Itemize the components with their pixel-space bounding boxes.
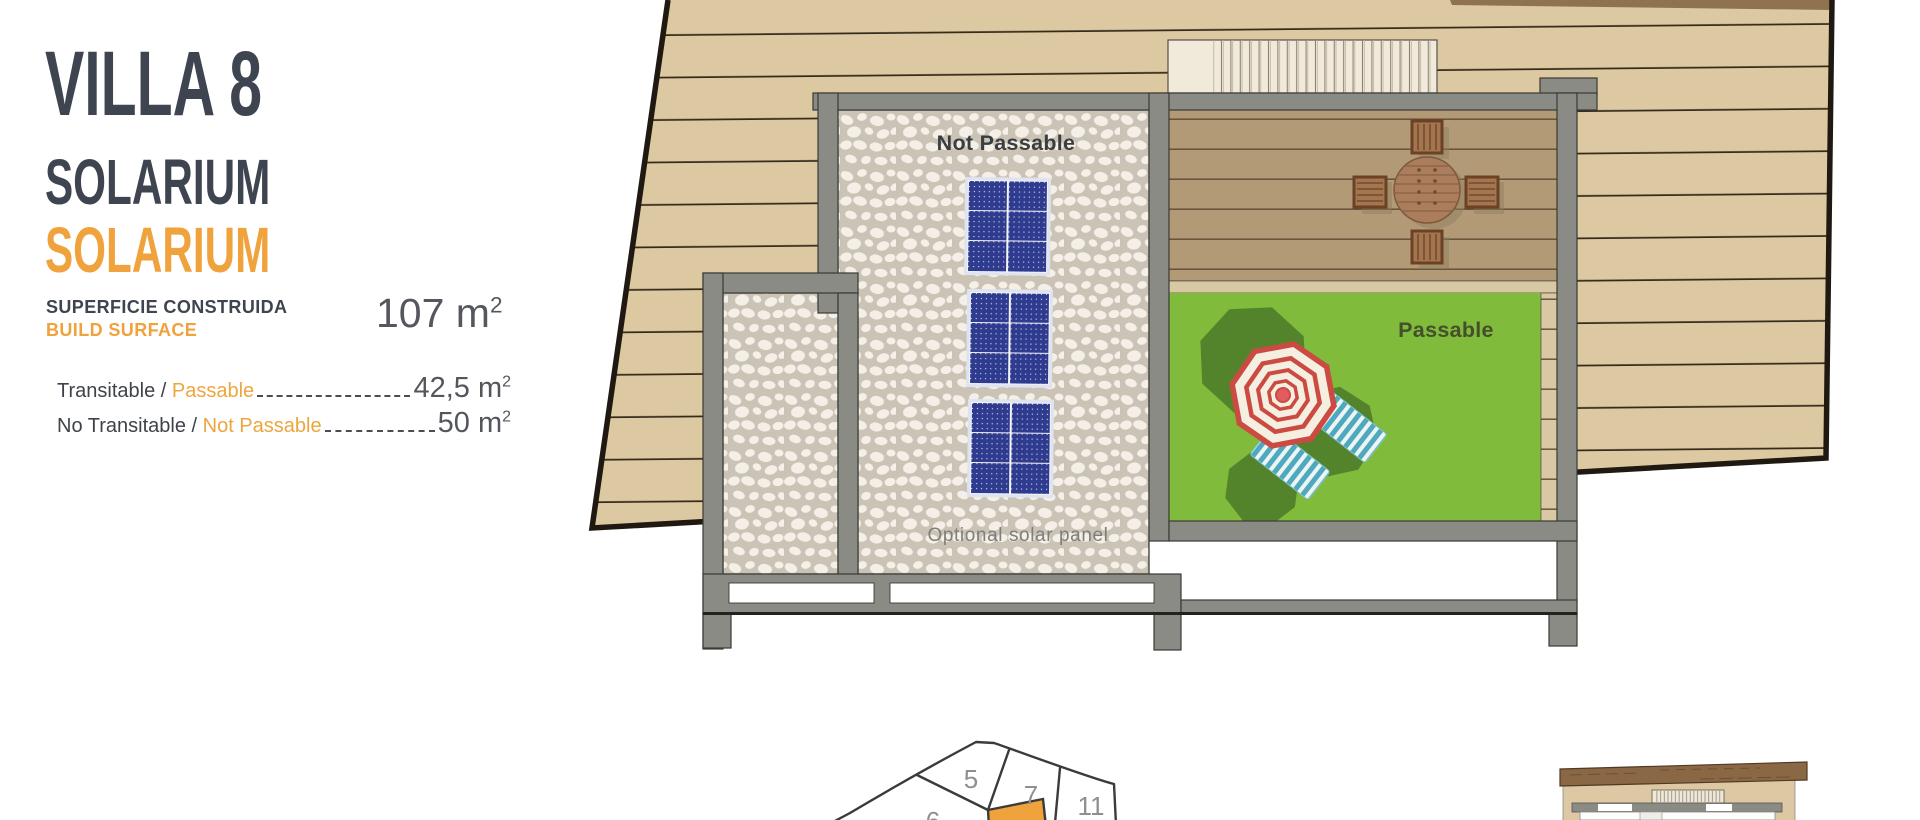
solar-panel-icon (964, 177, 1051, 276)
plot-number: 5 (964, 764, 978, 794)
passable-label: Passable (1398, 318, 1494, 342)
mini-plan-thumbnail (1560, 762, 1807, 820)
brochure-page: VILLA 8 SOLARIUM SOLARIUM SUPERFICIE CON… (0, 0, 1920, 820)
solar-panel-icon (967, 399, 1054, 498)
chair-icon (1412, 231, 1442, 263)
gravel-floor-side (723, 293, 838, 574)
floor-plan-drawing: Not Passable Passable Optional solar pan… (0, 0, 1920, 820)
plot-number: 7 (1024, 780, 1038, 810)
chair-icon (1412, 121, 1442, 153)
plot-number: 11 (1078, 791, 1105, 820)
solar-panel-icon (966, 289, 1053, 388)
site-map: 5 7 11 6 (786, 742, 1117, 820)
stairs-strip (1168, 40, 1437, 93)
plot-number: 6 (926, 806, 940, 820)
solar-panels (964, 177, 1054, 498)
optional-solar-label: Optional solar panel (928, 525, 1109, 546)
not-passable-label: Not Passable (937, 131, 1076, 155)
round-table-icon (1394, 157, 1460, 223)
planter-slots (729, 583, 1154, 603)
walkway-strip (1541, 293, 1557, 521)
highlighted-plot (988, 799, 1048, 820)
chair-icon (1354, 177, 1386, 207)
chair-icon (1466, 177, 1498, 207)
